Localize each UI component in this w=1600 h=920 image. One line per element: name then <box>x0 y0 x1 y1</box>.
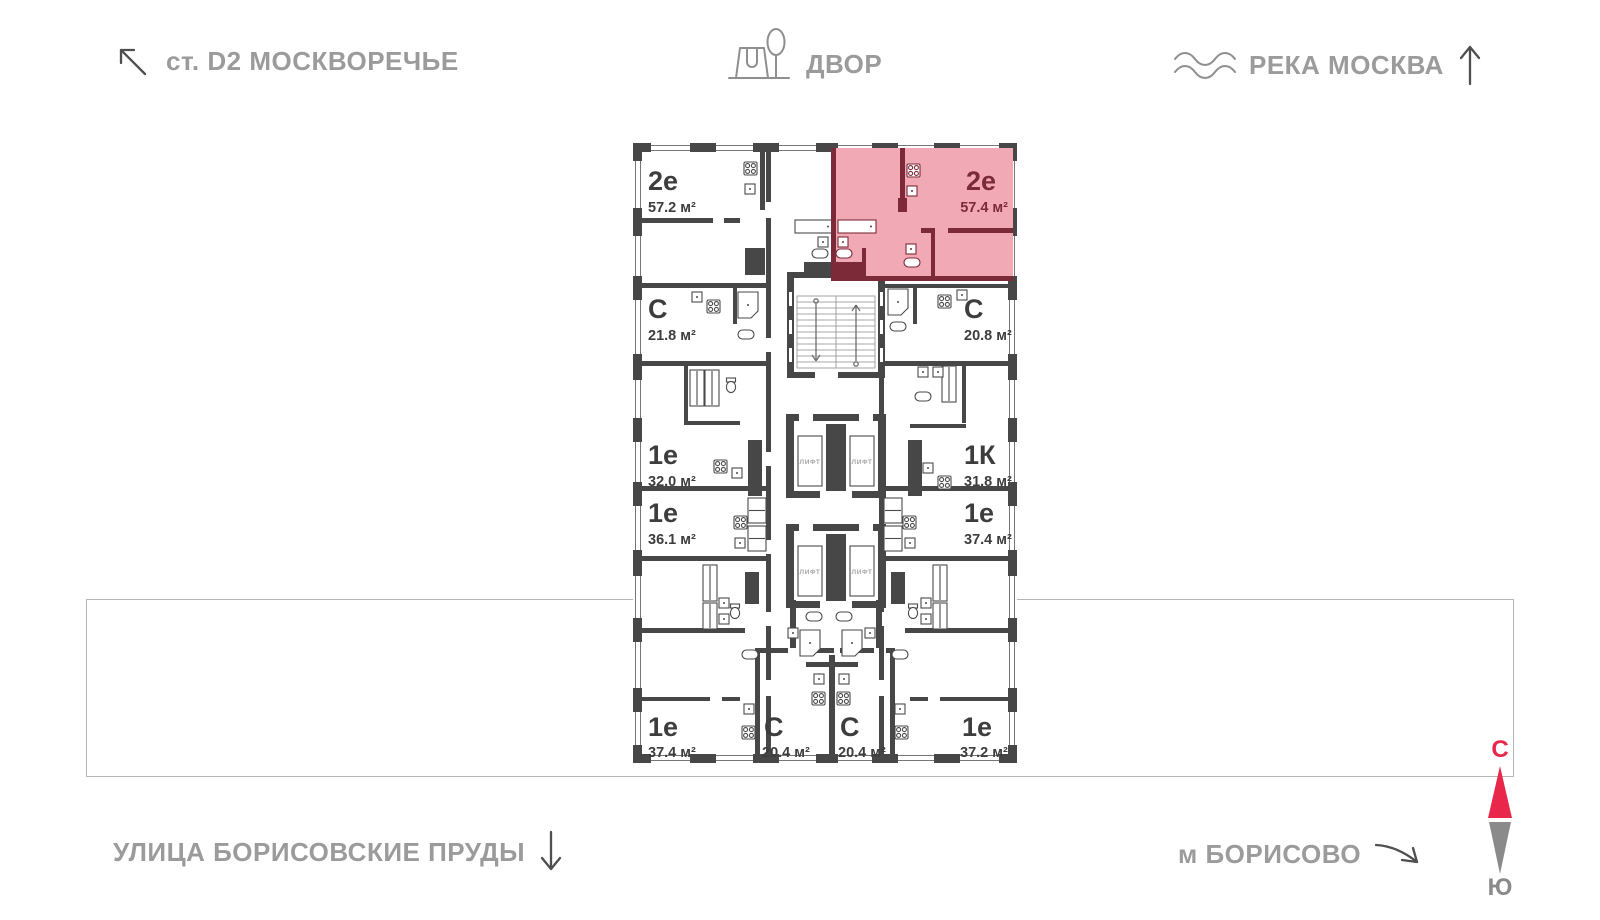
svg-text:20.8 м²: 20.8 м² <box>964 328 1012 344</box>
svg-text:2е: 2е <box>648 166 678 196</box>
station-label: ст. D2 МОСКВОРЕЧЬЕ <box>166 46 459 77</box>
waves-icon <box>1173 48 1237 82</box>
metro-label: м БОРИСОВО <box>1178 839 1361 870</box>
compass: С Ю <box>1481 736 1519 902</box>
svg-text:1е: 1е <box>962 712 992 742</box>
svg-text:С: С <box>840 712 860 742</box>
svg-text:1е: 1е <box>648 712 678 742</box>
svg-text:57.2 м²: 57.2 м² <box>648 200 696 216</box>
svg-text:36.1 м²: 36.1 м² <box>648 532 696 548</box>
landmark-street: УЛИЦА БОРИСОВСКИЕ ПРУДЫ <box>113 826 565 874</box>
svg-text:1е: 1е <box>964 498 994 528</box>
compass-south-label: Ю <box>1481 874 1519 902</box>
elevator-label: ЛИФТ <box>852 459 873 466</box>
landmark-metro: м БОРИСОВО <box>1178 834 1425 874</box>
page: ст. D2 МОСКВОРЕЧЬЕ ДВОР РЕКА МОСКВА УЛИЦ… <box>0 0 1600 920</box>
svg-text:С: С <box>764 712 784 742</box>
compass-needle-icon <box>1485 766 1515 874</box>
arrow-southeast-icon <box>1373 837 1425 871</box>
svg-text:37.2 м²: 37.2 м² <box>960 745 1008 761</box>
floor-plan: ЛИФТ ЛИФТ ЛИФТ ЛИФТ <box>633 143 1017 763</box>
svg-text:1е: 1е <box>648 440 678 470</box>
arrow-northwest-icon <box>112 41 152 81</box>
street-label: УЛИЦА БОРИСОВСКИЕ ПРУДЫ <box>113 837 525 868</box>
svg-text:37.4 м²: 37.4 м² <box>648 745 696 761</box>
elevator-label: ЛИФТ <box>800 459 821 466</box>
svg-text:20.4 м²: 20.4 м² <box>838 745 886 761</box>
svg-text:21.8 м²: 21.8 м² <box>648 328 696 344</box>
svg-text:1К: 1К <box>964 440 996 470</box>
arrow-down-icon <box>537 828 565 874</box>
svg-text:1е: 1е <box>648 498 678 528</box>
svg-text:32.0 м²: 32.0 м² <box>648 474 696 490</box>
svg-text:С: С <box>648 294 668 324</box>
landmark-station: ст. D2 МОСКВОРЕЧЬЕ <box>112 40 459 82</box>
compass-north-label: С <box>1481 736 1519 764</box>
svg-text:С: С <box>964 294 984 324</box>
svg-text:20.4 м²: 20.4 м² <box>762 745 810 761</box>
landmark-courtyard: ДВОР <box>726 26 882 82</box>
svg-text:31.8 м²: 31.8 м² <box>964 474 1012 490</box>
apartment-type: 2е <box>966 166 996 196</box>
river-label: РЕКА МОСКВА <box>1249 50 1444 81</box>
elevator-label: ЛИФТ <box>852 569 873 576</box>
svg-text:37.4 м²: 37.4 м² <box>964 532 1012 548</box>
courtyard-label: ДВОР <box>806 49 882 80</box>
arrow-up-icon <box>1456 42 1484 88</box>
courtyard-icon <box>726 26 792 82</box>
apartment-area: 57.4 м² <box>960 200 1008 216</box>
elevator-label: ЛИФТ <box>800 569 821 576</box>
apartment-2e-57-4-highlighted[interactable]: 2е 57.4 м² <box>831 148 1013 281</box>
landmark-river: РЕКА МОСКВА <box>1173 42 1484 88</box>
